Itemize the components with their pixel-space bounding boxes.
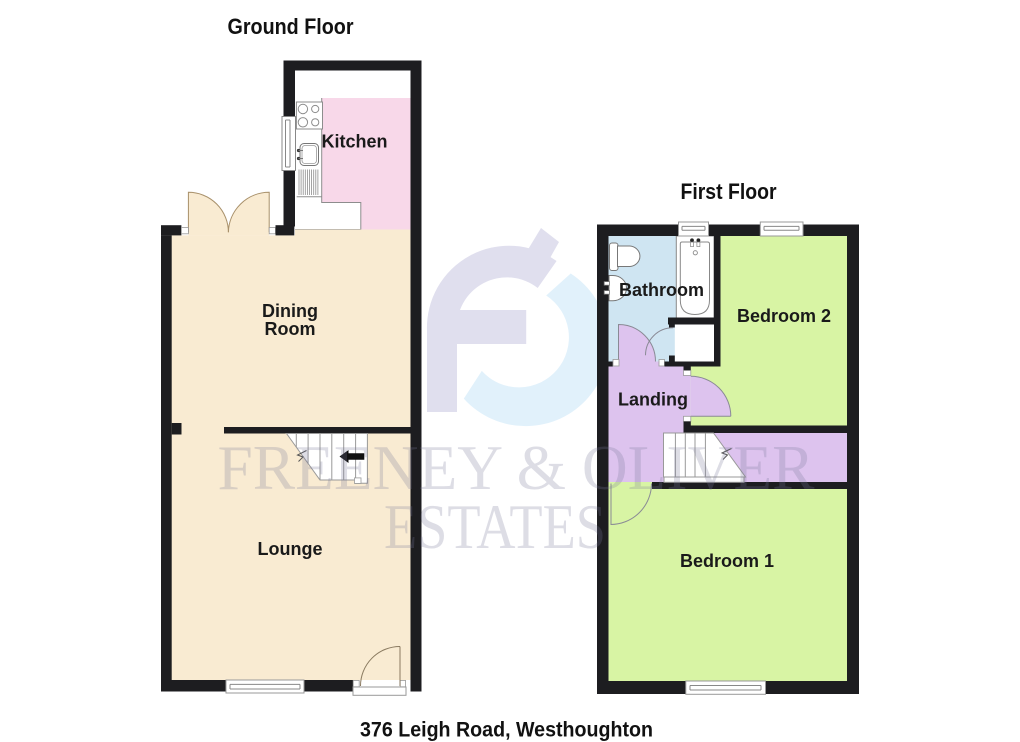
svg-text:Lounge: Lounge: [258, 539, 323, 559]
svg-text:376 Leigh Road, Westhoughton: 376 Leigh Road, Westhoughton: [360, 719, 653, 742]
svg-text:Room: Room: [265, 319, 316, 339]
svg-text:ESTATES: ESTATES: [384, 491, 606, 562]
svg-text:Bedroom 1: Bedroom 1: [680, 551, 774, 571]
svg-text:Bathroom: Bathroom: [619, 280, 704, 300]
svg-text:Dining: Dining: [262, 301, 318, 321]
svg-text:Landing: Landing: [618, 390, 688, 410]
svg-text:Ground Floor: Ground Floor: [228, 14, 354, 39]
svg-text:Bedroom 2: Bedroom 2: [737, 306, 831, 326]
svg-text:First Floor: First Floor: [681, 179, 777, 204]
svg-text:Kitchen: Kitchen: [321, 132, 387, 152]
